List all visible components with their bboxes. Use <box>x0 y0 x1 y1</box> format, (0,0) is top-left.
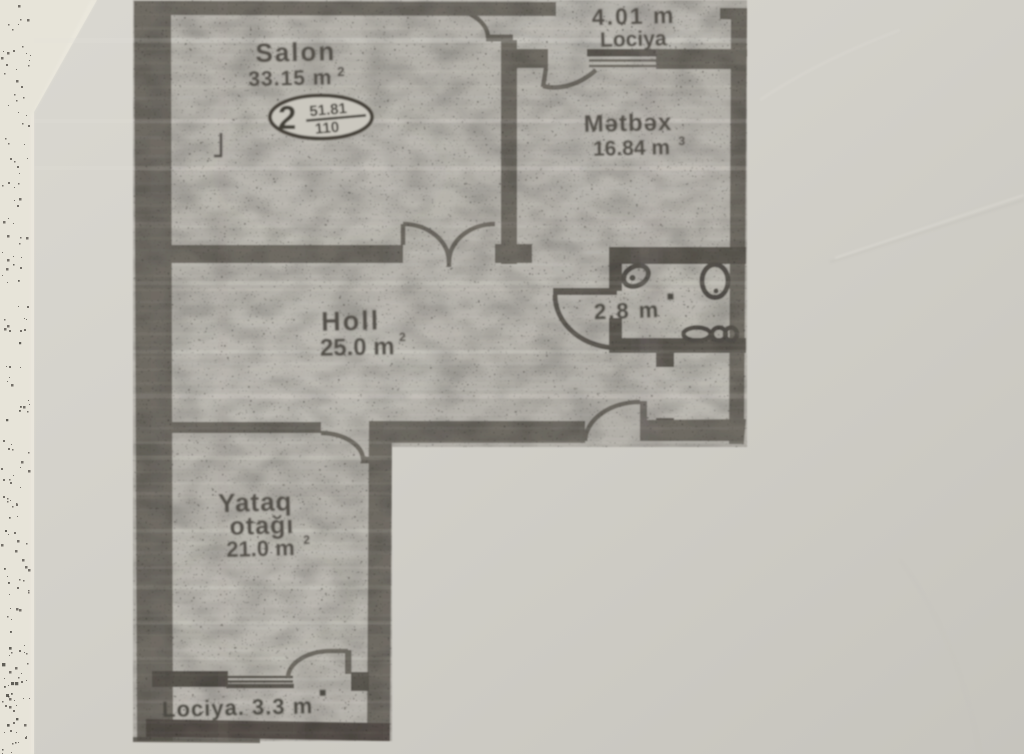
svg-text:Holl: Holl <box>321 305 381 336</box>
svg-text:25.0 m: 25.0 m <box>320 333 395 362</box>
svg-text:3: 3 <box>678 134 685 148</box>
svg-text:2: 2 <box>399 330 406 344</box>
svg-text:2: 2 <box>278 99 296 136</box>
svg-text:2: 2 <box>303 533 310 547</box>
svg-text:4.01 m: 4.01 m <box>592 2 676 30</box>
svg-text:110: 110 <box>314 119 340 138</box>
svg-text:2.8 m: 2.8 m <box>594 297 661 324</box>
svg-text:16.84 m: 16.84 m <box>593 136 671 161</box>
svg-text:Mətbəx: Mətbəx <box>583 109 672 138</box>
svg-text:2: 2 <box>337 64 345 79</box>
svg-text:33.15 m: 33.15 m <box>248 66 333 91</box>
svg-text:21.0 m: 21.0 m <box>226 535 295 562</box>
svg-text:Lociya. 3.3 m: Lociya. 3.3 m <box>162 693 314 722</box>
svg-text:Lociya: Lociya <box>600 27 667 52</box>
svg-text:Salon: Salon <box>255 36 336 68</box>
